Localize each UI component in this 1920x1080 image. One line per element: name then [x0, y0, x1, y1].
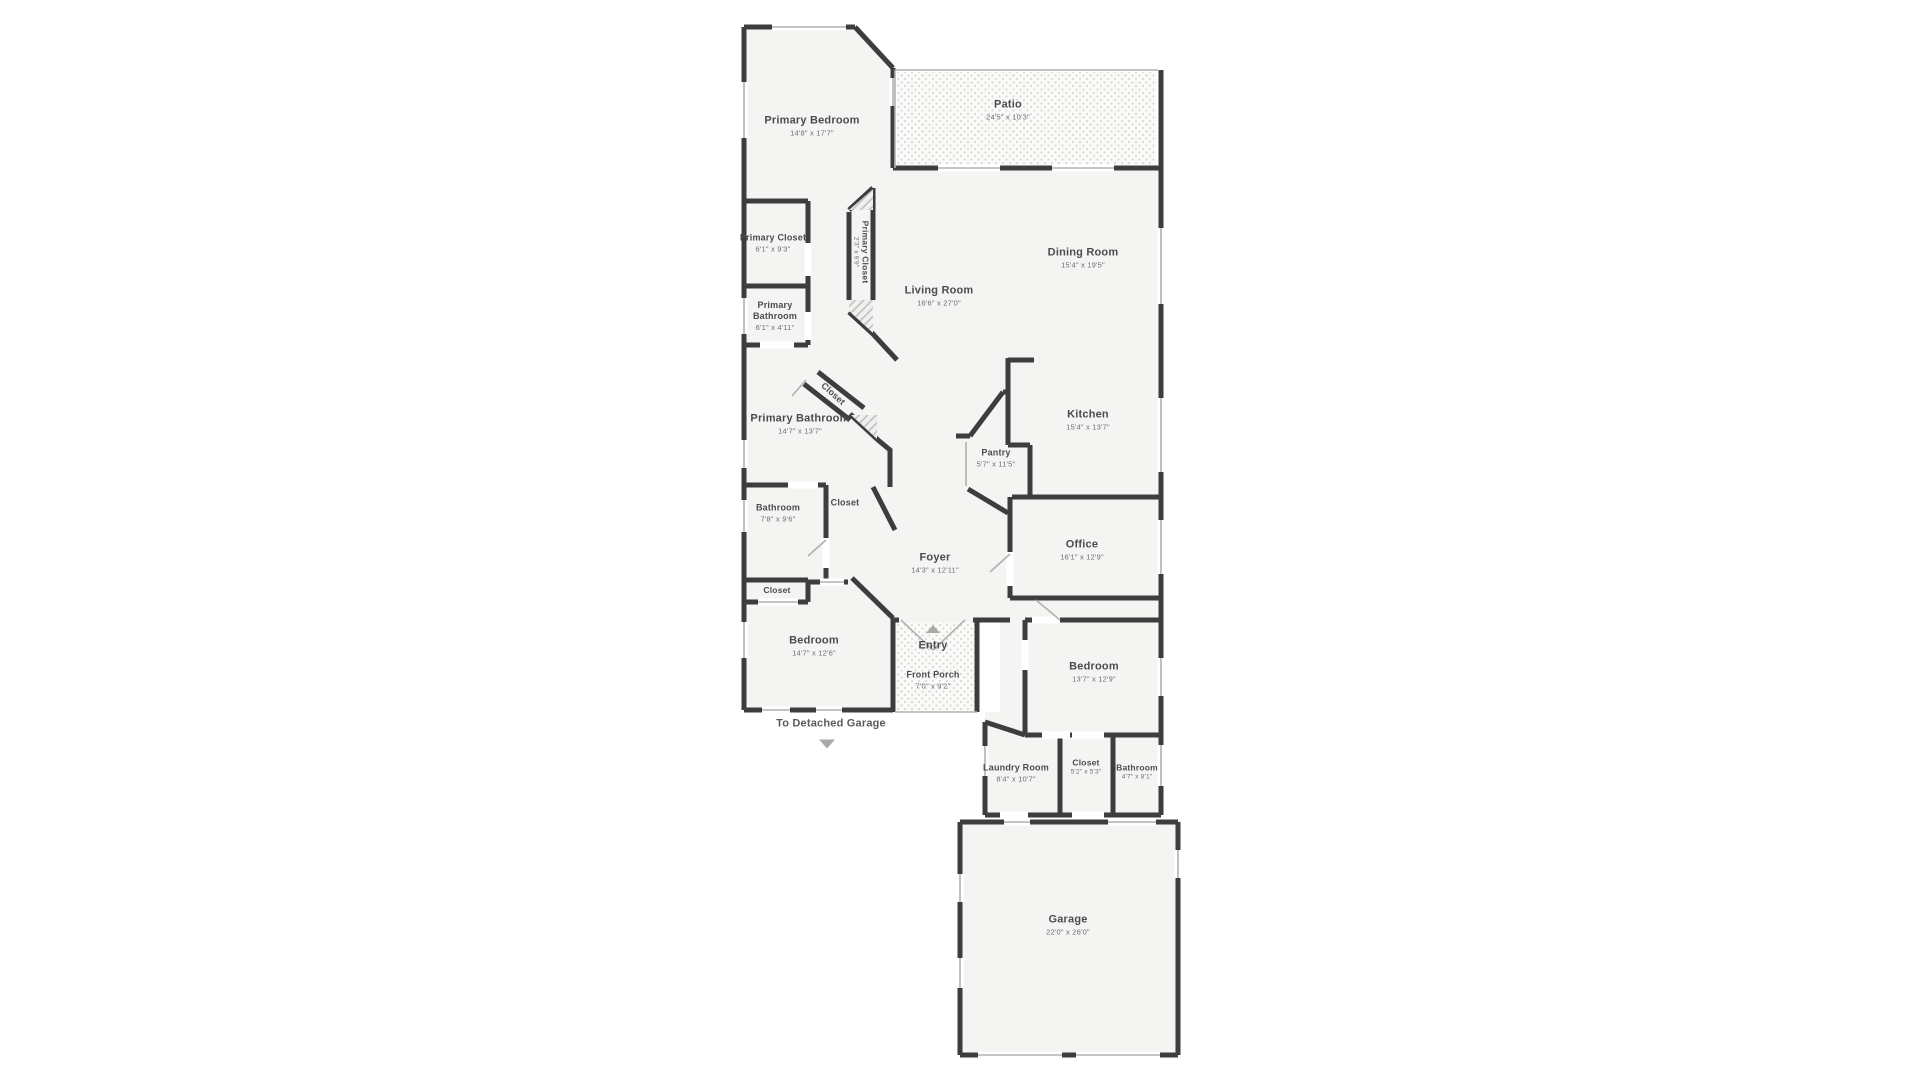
room-label-front-porch: Front Porch 7'0" x 9'2" [906, 670, 959, 691]
room-label-bathroom-2: Bathroom 4'7" x 8'1" [1116, 763, 1158, 782]
room-label-closet-small: Closet [763, 585, 790, 595]
room-label-entry: Entry [918, 639, 947, 652]
room-label-primary-bedroom: Primary Bedroom 14'8" x 17'7" [764, 114, 859, 137]
room-label-garage: Garage 22'0" x 26'0" [1046, 913, 1090, 936]
room-label-primary-bathroom: Primary Bathroom 14'7" x 13'7" [750, 412, 849, 435]
room-label-bedroom-right: Bedroom 13'7" x 12'9" [1069, 660, 1119, 683]
detached-garage-direction-arrow-icon [819, 740, 835, 749]
door-opening [1032, 617, 1060, 624]
room-label-bedroom-left: Bedroom 14'7" x 12'6" [789, 634, 839, 657]
room-label-kitchen: Kitchen 15'4" x 13'7" [1066, 408, 1110, 431]
room-label-office: Office 16'1" x 12'9" [1060, 538, 1104, 561]
room-label-primary-closet-2: Primary Closet 2'3" x 9'9" [852, 221, 871, 284]
room-label-closet-bedroom: Closet 5'2" x 5'3" [1071, 758, 1102, 777]
room-label-pantry: Pantry 5'7" x 11'5" [977, 448, 1016, 469]
room-label-primary-closet: Primary Closet 6'1" x 9'3" [740, 233, 806, 254]
floor-plan-canvas [0, 0, 1920, 1080]
door-opening [1000, 812, 1028, 819]
door-opening [788, 482, 818, 489]
entry-direction-arrow-icon [926, 625, 940, 633]
to-detached-garage-note: To Detached Garage [776, 717, 886, 730]
room-label-primary-bathroom-small: Primary Bathroom 6'1" x 4'11" [742, 300, 808, 332]
door-opening [1042, 732, 1070, 739]
room-label-patio: Patio 24'5" x 10'3" [986, 98, 1030, 121]
door-opening [1022, 640, 1029, 670]
door-opening [760, 342, 794, 349]
door-opening [1072, 812, 1104, 819]
room-label-bathroom: Bathroom 7'8" x 9'6" [756, 503, 800, 524]
room-label-living-room: Living Room 16'6" x 27'0" [905, 284, 974, 307]
door-opening [1072, 732, 1104, 739]
room-label-foyer: Foyer 14'3" x 12'11" [911, 551, 959, 574]
room-label-laundry-room: Laundry Room 8'4" x 10'7" [983, 763, 1049, 784]
floor-plan: Primary Bedroom 14'8" x 17'7" Patio 24'5… [0, 0, 1920, 1080]
room-label-closet-bath: Closet [831, 498, 860, 509]
room-area [960, 822, 1178, 1055]
room-label-dining-room: Dining Room 15'4" x 19'5" [1048, 246, 1119, 269]
dotted-surface [896, 622, 975, 711]
